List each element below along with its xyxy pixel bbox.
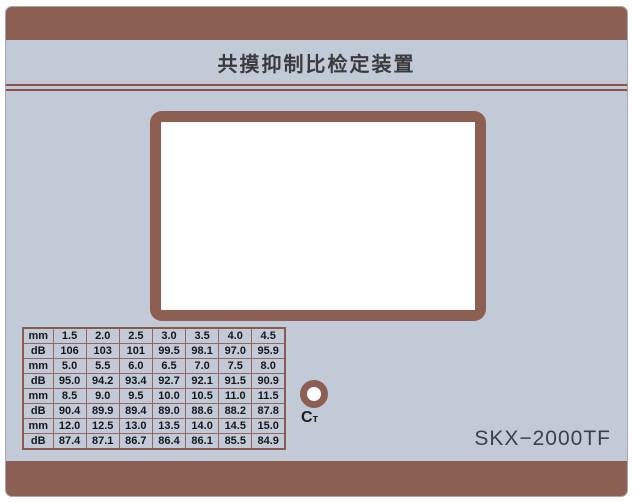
- table-cell: 8.5: [53, 389, 86, 404]
- table-cell: 101: [119, 344, 152, 359]
- table-cell: 10.5: [186, 389, 219, 404]
- table-cell: 86.4: [152, 434, 185, 450]
- bottom-accent-bar: [6, 461, 627, 496]
- table-cell: 7.0: [186, 359, 219, 374]
- table-cell: 2.5: [119, 328, 152, 344]
- table-cell: 89.9: [86, 404, 119, 419]
- separator-line-top: [6, 84, 627, 86]
- table-cell: 8.0: [252, 359, 285, 374]
- table-cell: 11.5: [252, 389, 285, 404]
- table-cell: 95.0: [53, 374, 86, 389]
- table-cell: 85.5: [219, 434, 252, 450]
- table-row: mm1.52.02.53.03.54.04.5: [23, 328, 285, 344]
- table-cell: 98.1: [186, 344, 219, 359]
- table-cell: 91.5: [219, 374, 252, 389]
- table-cell: 89.0: [152, 404, 185, 419]
- table-cell: 4.5: [252, 328, 285, 344]
- table-cell: 3.0: [152, 328, 185, 344]
- table-cell: 106: [53, 344, 86, 359]
- table-cell: 86.1: [186, 434, 219, 450]
- top-accent-bar: [6, 7, 627, 40]
- table-cell: 9.0: [86, 389, 119, 404]
- table-cell: 2.0: [86, 328, 119, 344]
- table-cell: 5.0: [53, 359, 86, 374]
- front-panel: 共摸抑制比检定装置 mm1.52.02.53.03.54.04.5dB10610…: [5, 6, 628, 497]
- table-row: mm8.59.09.510.010.511.011.5: [23, 389, 285, 404]
- table-cell: 86.7: [119, 434, 152, 450]
- model-number: SKX−2000TF: [474, 427, 611, 451]
- table-row: mm12.012.513.013.514.014.515.0: [23, 419, 285, 434]
- table-cell: 95.9: [252, 344, 285, 359]
- table-cell: 1.5: [53, 328, 86, 344]
- table-cell: 89.4: [119, 404, 152, 419]
- table-cell: 13.5: [152, 419, 185, 434]
- ct-label-sub: т: [313, 413, 318, 425]
- row-unit-label: mm: [23, 389, 53, 404]
- table-row: mm5.05.56.06.57.07.58.0: [23, 359, 285, 374]
- table-cell: 10.0: [152, 389, 185, 404]
- table-row: dB10610310199.598.197.095.9: [23, 344, 285, 359]
- display-screen: [150, 111, 486, 321]
- table-cell: 90.4: [53, 404, 86, 419]
- title-band: 共摸抑制比检定装置: [6, 40, 627, 84]
- table-cell: 92.7: [152, 374, 185, 389]
- calibration-table: mm1.52.02.53.03.54.04.5dB10610310199.598…: [22, 327, 286, 450]
- ct-indicator-label: Cт: [301, 409, 318, 427]
- table-cell: 87.1: [86, 434, 119, 450]
- table-cell: 12.5: [86, 419, 119, 434]
- row-unit-label: mm: [23, 359, 53, 374]
- table-row: dB90.489.989.489.088.688.287.8: [23, 404, 285, 419]
- table-cell: 15.0: [252, 419, 285, 434]
- table-cell: 94.2: [86, 374, 119, 389]
- ct-label-main: C: [301, 409, 313, 426]
- table-cell: 5.5: [86, 359, 119, 374]
- row-unit-label: mm: [23, 328, 53, 344]
- row-unit-label: dB: [23, 434, 53, 450]
- table-cell: 12.0: [53, 419, 86, 434]
- table-cell: 90.9: [252, 374, 285, 389]
- table-cell: 13.0: [119, 419, 152, 434]
- table-row: dB95.094.293.492.792.191.590.9: [23, 374, 285, 389]
- table-cell: 7.5: [219, 359, 252, 374]
- table-cell: 14.0: [186, 419, 219, 434]
- table-cell: 3.5: [186, 328, 219, 344]
- table-cell: 6.5: [152, 359, 185, 374]
- table-cell: 93.4: [119, 374, 152, 389]
- table-cell: 88.6: [186, 404, 219, 419]
- table-cell: 4.0: [219, 328, 252, 344]
- table-cell: 87.8: [252, 404, 285, 419]
- table-cell: 14.5: [219, 419, 252, 434]
- table-cell: 87.4: [53, 434, 86, 450]
- table-row: dB87.487.186.786.486.185.584.9: [23, 434, 285, 450]
- table-cell: 103: [86, 344, 119, 359]
- table-cell: 99.5: [152, 344, 185, 359]
- table-cell: 97.0: [219, 344, 252, 359]
- page-title: 共摸抑制比检定装置: [218, 48, 416, 77]
- table-cell: 84.9: [252, 434, 285, 450]
- row-unit-label: mm: [23, 419, 53, 434]
- table-cell: 9.5: [119, 389, 152, 404]
- separator-line-bottom: [6, 89, 627, 91]
- cmrr-table-body: mm1.52.02.53.03.54.04.5dB10610310199.598…: [23, 328, 285, 449]
- table-cell: 88.2: [219, 404, 252, 419]
- table-cell: 92.1: [186, 374, 219, 389]
- table-cell: 11.0: [219, 389, 252, 404]
- ct-indicator-button[interactable]: [300, 380, 328, 408]
- row-unit-label: dB: [23, 344, 53, 359]
- device-front-panel-image: 共摸抑制比检定装置 mm1.52.02.53.03.54.04.5dB10610…: [0, 0, 633, 502]
- row-unit-label: dB: [23, 374, 53, 389]
- table-cell: 6.0: [119, 359, 152, 374]
- row-unit-label: dB: [23, 404, 53, 419]
